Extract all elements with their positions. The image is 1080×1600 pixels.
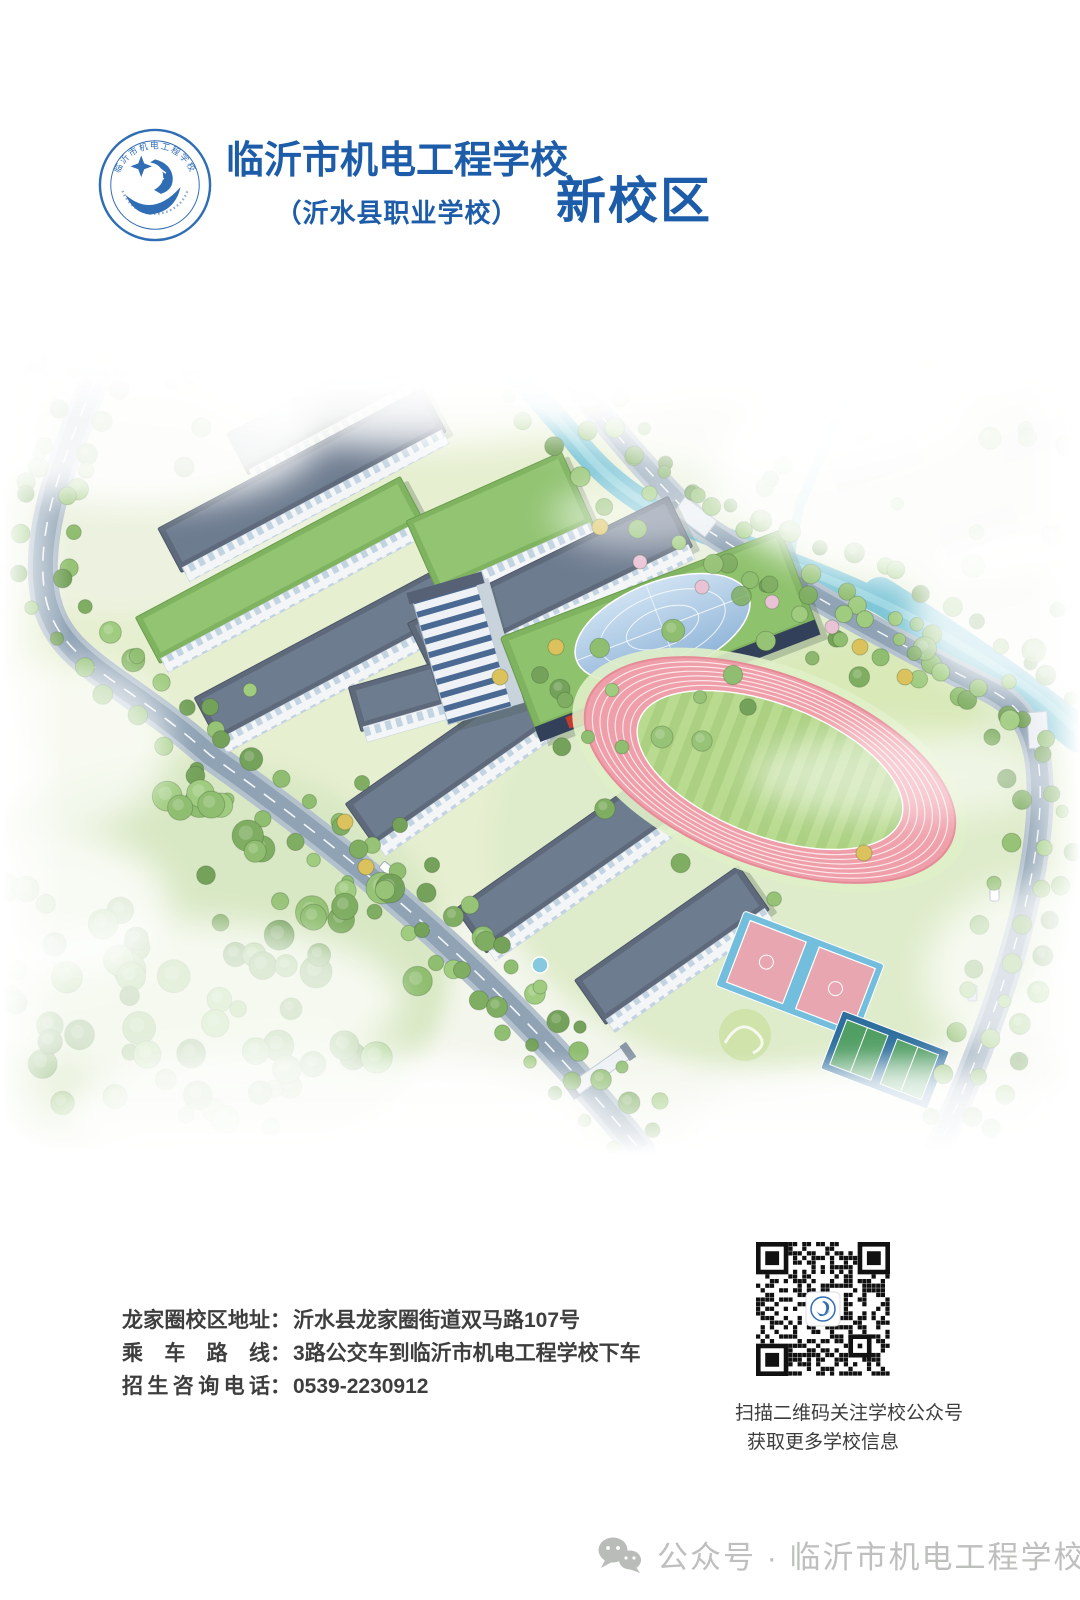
contact-info: 龙家圈校区地址：沂水县龙家圈街道双马路107号 乘车路线：3路公交车到临沂市机电… xyxy=(122,1304,641,1403)
poster-page: 临沂市机电工程学校 临沂市机电工程学校 （沂水县职业学校） 新校区 xyxy=(0,0,1080,1600)
school-emblem-icon: 临沂市机电工程学校 xyxy=(96,126,214,244)
campus-label: 新校区 xyxy=(556,161,712,233)
watermark-text: 公众号 · 临沂市机电工程学校 xyxy=(657,1532,1080,1577)
campus-aerial-rendering xyxy=(0,345,1080,1155)
contact-value: 沂水县龙家圈街道双马路107号 xyxy=(293,1304,580,1337)
qr-caption: 扫描二维码关注学校公众号 获取更多学校信息 xyxy=(735,1399,911,1457)
qr-section: 扫描二维码关注学校公众号 获取更多学校信息 xyxy=(735,1236,911,1457)
watermark: 公众号 · 临沂市机电工程学校 xyxy=(596,1532,1080,1577)
school-subtitle: （沂水县职业学校） xyxy=(226,193,568,230)
campus-aerial-illustration xyxy=(0,345,1080,1155)
contact-row-bus: 乘车路线：3路公交车到临沂市机电工程学校下车 xyxy=(122,1337,641,1370)
contact-row-phone: 招生咨询电话：0539-2230912 xyxy=(122,1370,641,1403)
contact-label: 招生咨询电话 xyxy=(122,1370,270,1403)
header-titles: 临沂市机电工程学校 （沂水县职业学校） xyxy=(226,140,568,230)
qr-caption-line1: 扫描二维码关注学校公众号 xyxy=(735,1399,911,1428)
wechat-icon xyxy=(596,1535,644,1575)
school-emblem-logo: 临沂市机电工程学校 xyxy=(96,126,214,244)
contact-label: 乘车路线 xyxy=(122,1337,270,1370)
fountain xyxy=(532,957,548,973)
school-name: 临沂市机电工程学校 xyxy=(226,140,568,184)
qr-code xyxy=(750,1236,896,1382)
qr-caption-line2: 获取更多学校信息 xyxy=(735,1428,911,1457)
contact-value: 3路公交车到临沂市机电工程学校下车 xyxy=(293,1337,641,1370)
contact-value: 0539-2230912 xyxy=(293,1370,428,1403)
contact-row-address: 龙家圈校区地址：沂水县龙家圈街道双马路107号 xyxy=(122,1304,641,1337)
contact-label: 龙家圈校区地址 xyxy=(122,1304,270,1337)
